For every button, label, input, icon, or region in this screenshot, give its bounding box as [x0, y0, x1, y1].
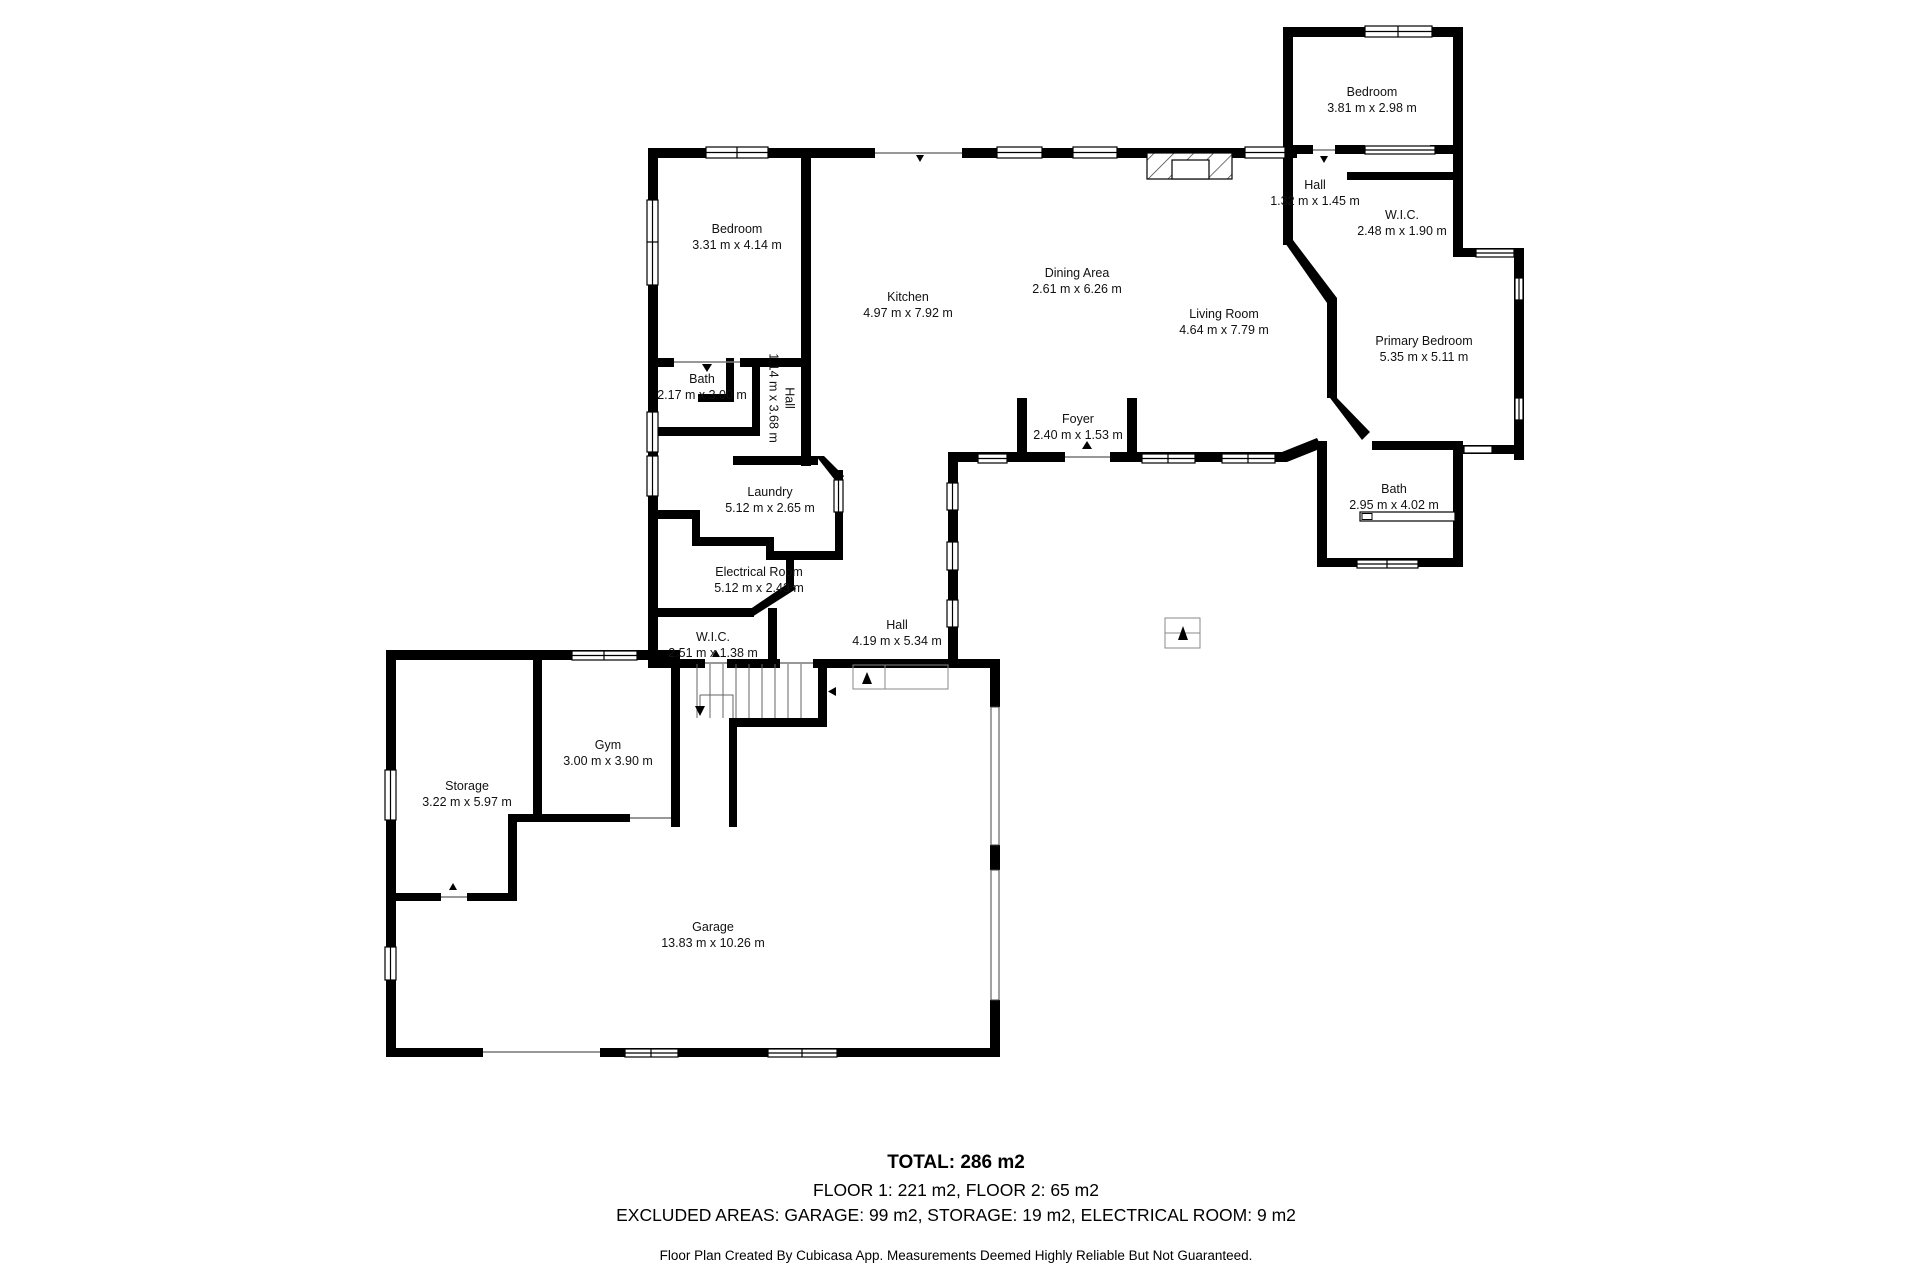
- room-label-hall-f1: Hall 4.19 m x 5.34 m: [852, 617, 942, 650]
- room-label-gym: Gym 3.00 m x 3.90 m: [563, 737, 653, 770]
- floor-plan: Bedroom 3.81 m x 2.98 m Hall 1.32 m x 1.…: [0, 0, 1920, 1280]
- excluded-areas-text: EXCLUDED AREAS: GARAGE: 99 m2, STORAGE: …: [0, 1205, 1912, 1226]
- exterior-steps: [1165, 618, 1200, 648]
- room-label-hall-f2: Hall 1.32 m x 1.45 m: [1270, 177, 1360, 210]
- door-markers: [449, 155, 1328, 890]
- disclaimer-text: Floor Plan Created By Cubicasa App. Meas…: [0, 1248, 1912, 1263]
- room-label-laundry: Laundry 5.12 m x 2.65 m: [725, 484, 815, 517]
- room-label-bath-f1: Bath 2.17 m x 3.00 m: [657, 371, 747, 404]
- room-label-primary-bedroom: Primary Bedroom 5.35 m x 5.11 m: [1375, 333, 1472, 366]
- floorplan-drawing: [0, 0, 1920, 1280]
- total-area-text: TOTAL: 286 m2: [0, 1152, 1912, 1174]
- room-label-kitchen: Kitchen 4.97 m x 7.92 m: [863, 289, 953, 322]
- room-label-dining-area: Dining Area 2.61 m x 6.26 m: [1032, 265, 1122, 298]
- room-label-hall-corridor: Hall 1.14 m x 3.68 m: [765, 353, 798, 443]
- room-label-living-room: Living Room 4.64 m x 7.79 m: [1179, 306, 1269, 339]
- staircase: [697, 664, 801, 718]
- entry-steps: [853, 665, 948, 689]
- fireplace-hatch: [1147, 153, 1232, 179]
- room-label-bedroom-f2: Bedroom 3.81 m x 2.98 m: [1327, 84, 1417, 117]
- footer: TOTAL: 286 m2 FLOOR 1: 221 m2, FLOOR 2: …: [0, 1152, 1912, 1263]
- bath-vanity: [1360, 512, 1455, 521]
- room-label-storage: Storage 3.22 m x 5.97 m: [422, 778, 512, 811]
- room-label-wic-f2: W.I.C. 2.48 m x 1.90 m: [1357, 207, 1447, 240]
- room-label-bath-primary: Bath 2.95 m x 4.02 m: [1349, 481, 1439, 514]
- room-label-garage: Garage 13.83 m x 10.26 m: [661, 919, 765, 952]
- room-label-foyer: Foyer 2.40 m x 1.53 m: [1033, 411, 1123, 444]
- floor-areas-text: FLOOR 1: 221 m2, FLOOR 2: 65 m2: [0, 1180, 1912, 1201]
- room-label-wic-f1: W.I.C. 2.51 m x 1.38 m: [668, 629, 758, 662]
- room-label-electrical-room: Electrical Room 5.12 m x 2.43 m: [714, 564, 804, 597]
- openings-layer: [441, 150, 1335, 1052]
- room-label-bedroom-f1: Bedroom 3.31 m x 4.14 m: [692, 221, 782, 254]
